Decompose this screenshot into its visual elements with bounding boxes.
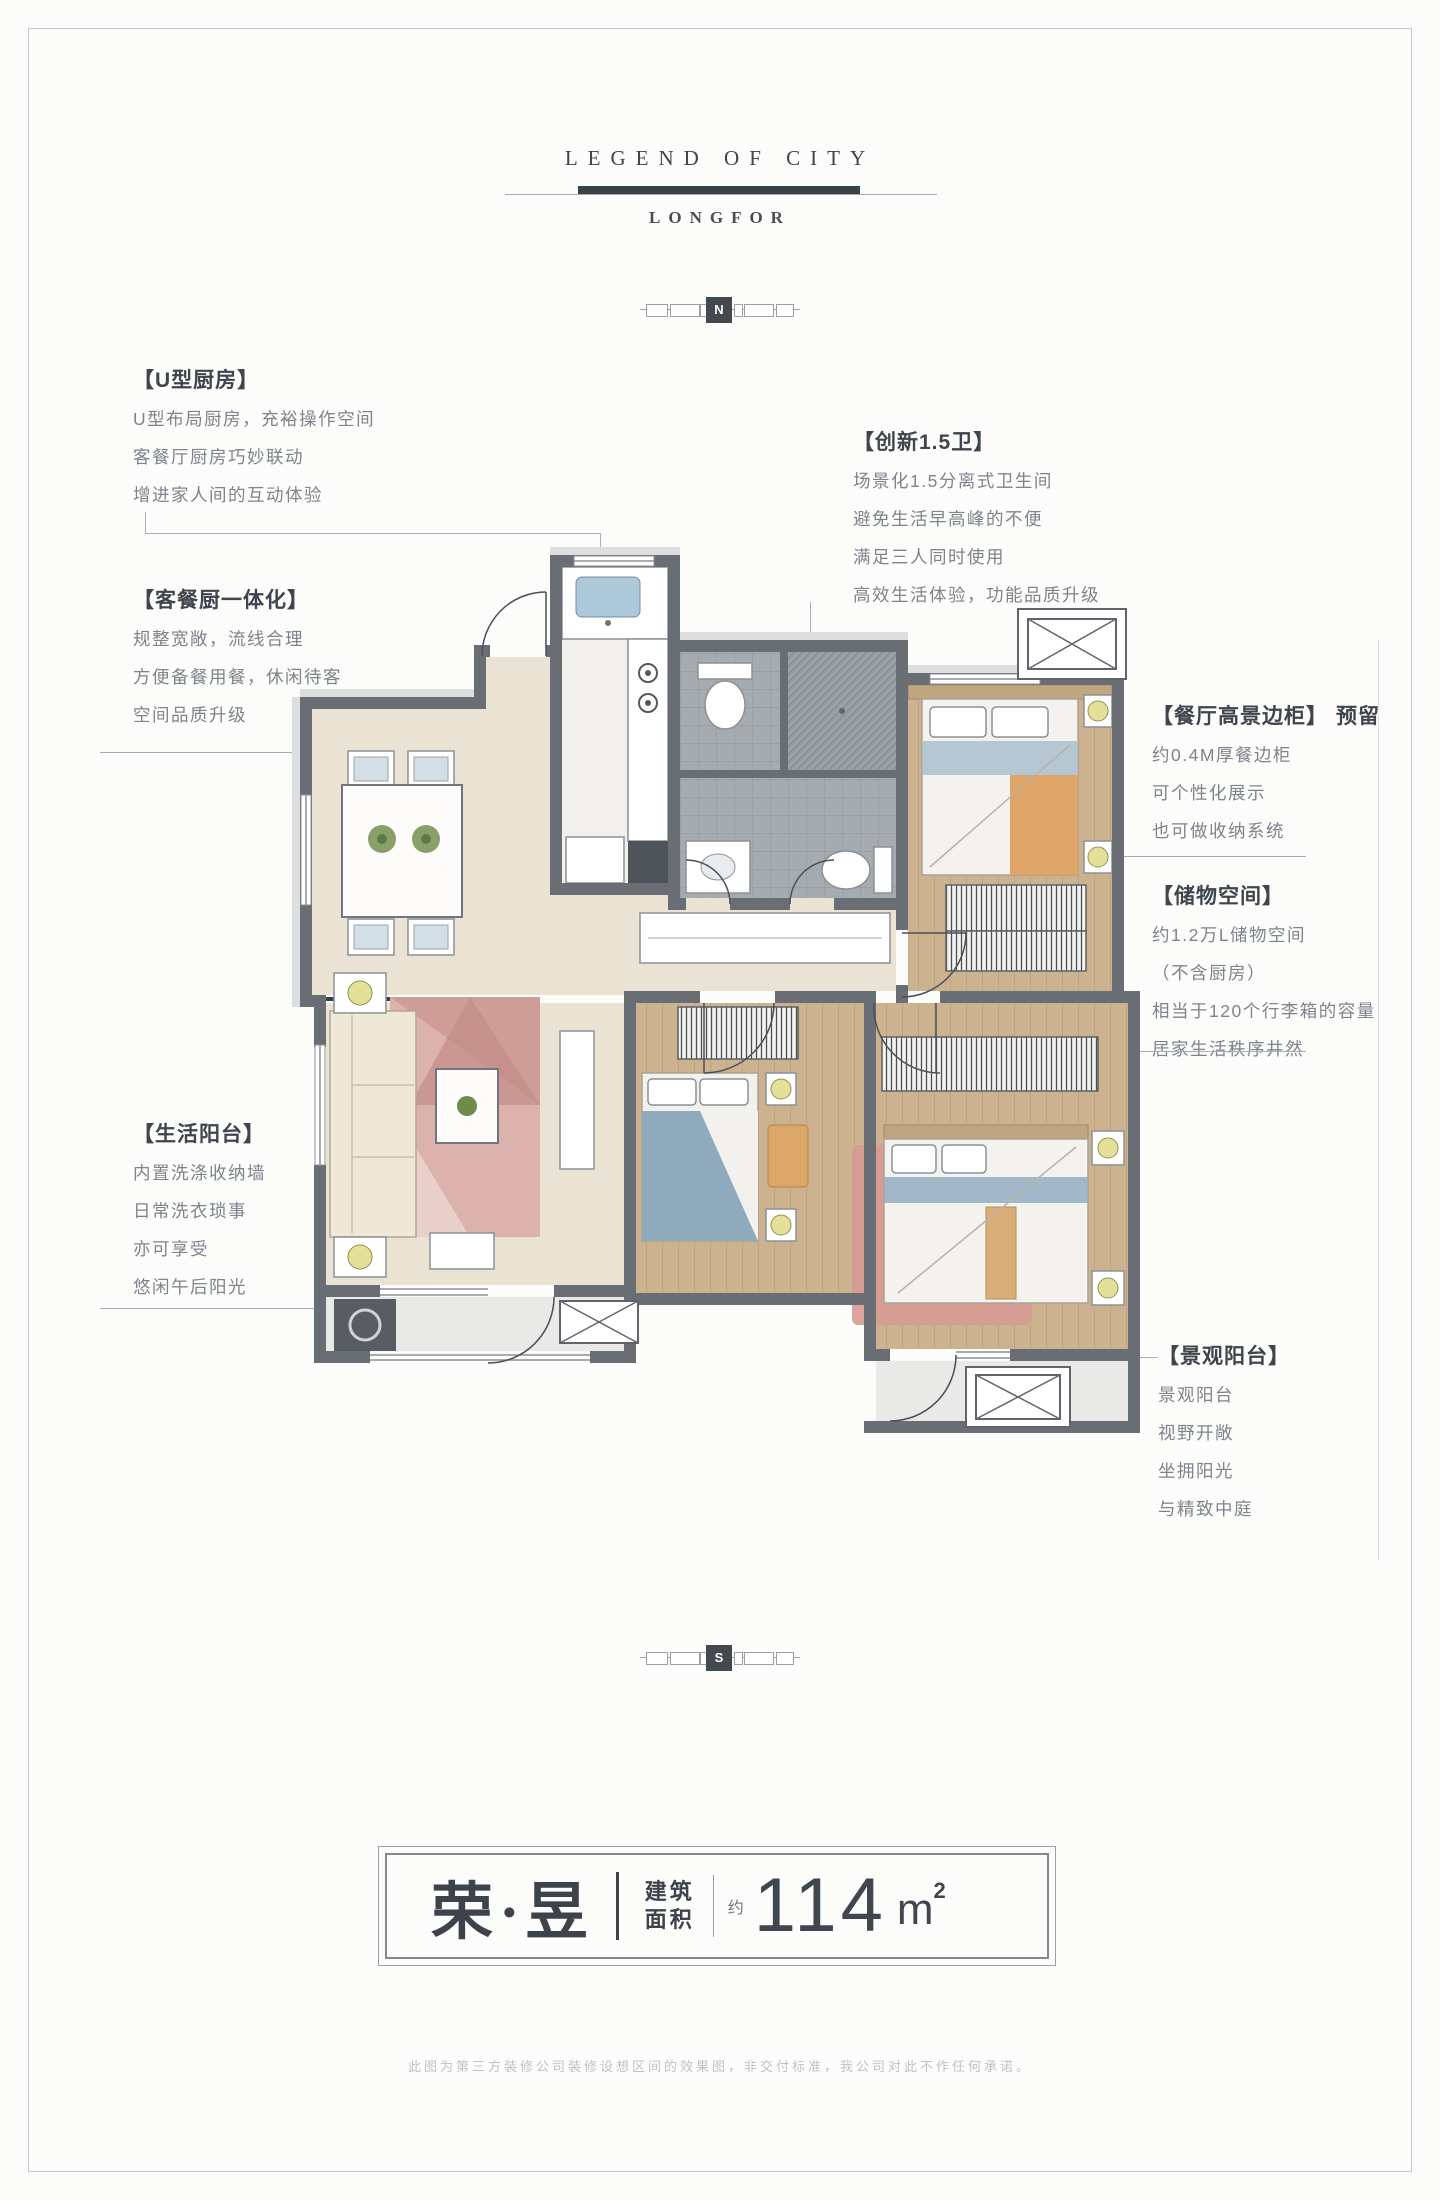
unit-title-card-inner: 荣·昱 建筑 面积 约 114 m2 bbox=[385, 1853, 1049, 1959]
south-indicator: S bbox=[706, 1645, 732, 1671]
wardrobe bbox=[678, 1007, 798, 1059]
toilet-tank bbox=[874, 847, 892, 893]
pillow bbox=[892, 1145, 936, 1173]
toilet-icon bbox=[705, 681, 745, 729]
unit-title-card: 荣·昱 建筑 面积 约 114 m2 bbox=[378, 1846, 1056, 1966]
headboard bbox=[884, 1125, 1088, 1139]
lamp-icon bbox=[1088, 701, 1108, 721]
shower-drain-icon bbox=[839, 708, 845, 714]
toilet-icon bbox=[822, 851, 870, 889]
life-balcony-items bbox=[334, 1299, 396, 1351]
pillow bbox=[992, 707, 1048, 737]
footstool bbox=[430, 1233, 494, 1269]
dining-table bbox=[342, 785, 462, 917]
kitchen-cabinet bbox=[628, 841, 668, 883]
entry-door-arc bbox=[482, 592, 546, 656]
lamp-icon bbox=[771, 1079, 791, 1099]
lamp-icon bbox=[1098, 1278, 1118, 1298]
area-value: 114 bbox=[754, 1868, 887, 1944]
kitchen-sink bbox=[576, 577, 640, 617]
lamp-icon bbox=[771, 1215, 791, 1235]
leader-u-kitchen bbox=[145, 512, 146, 533]
lamp-icon bbox=[1088, 847, 1108, 867]
washing-machine bbox=[334, 1299, 396, 1351]
sofa bbox=[330, 1011, 416, 1237]
compass-south-bar: S bbox=[640, 1644, 800, 1674]
callout-u-kitchen: 【U型厨房】 U型布局厨房，充裕操作空间 客餐厅厨房巧妙联动 增进家人间的互动体… bbox=[133, 364, 453, 524]
corridor-storage bbox=[640, 913, 890, 963]
brand-wordmark: LEGEND OF CITY bbox=[0, 146, 1440, 171]
area-label: 建筑 面积 bbox=[645, 1878, 695, 1934]
plant-icon bbox=[457, 1096, 477, 1116]
lamp-icon bbox=[1098, 1138, 1118, 1158]
unit-name: 荣·昱 bbox=[431, 1861, 594, 1951]
brand-underline bbox=[505, 194, 937, 195]
pillow bbox=[930, 707, 986, 737]
pillow bbox=[700, 1079, 748, 1105]
north-indicator: N bbox=[706, 297, 732, 323]
approx-label: 约 bbox=[728, 1894, 744, 1918]
leader-storage bbox=[1126, 1051, 1306, 1052]
blanket bbox=[1010, 775, 1078, 875]
wardrobe bbox=[882, 1037, 1098, 1091]
callout-view-balcony: 【景观阳台】 景观阳台 视野开敞 坐拥阳光 与精致中庭 bbox=[1158, 1340, 1418, 1538]
pillow bbox=[942, 1145, 986, 1173]
callout-title: 【餐厅高景边柜】预留 bbox=[1152, 700, 1422, 730]
leader-sideboard bbox=[1124, 856, 1306, 857]
tv-console bbox=[560, 1031, 594, 1169]
brand-name: LONGFOR bbox=[0, 208, 1440, 228]
floor-plan bbox=[230, 545, 1145, 1445]
callout-title: 【储物空间】 bbox=[1152, 880, 1432, 910]
fridge bbox=[566, 837, 624, 883]
callout-sideboard: 【餐厅高景边柜】预留 约0.4M厚餐边柜 可个性化展示 也可做收纳系统 bbox=[1152, 700, 1422, 860]
bed-runner bbox=[884, 1177, 1088, 1203]
callout-title: 【景观阳台】 bbox=[1158, 1340, 1418, 1370]
leader-u-kitchen bbox=[145, 533, 601, 534]
bed-bench bbox=[986, 1207, 1016, 1299]
callout-title: 【U型厨房】 bbox=[133, 364, 453, 394]
disclaimer-text: 此图为第三方装修公司装修设想区间的效果图，非交付标准，我公司对此不作任何承诺。 bbox=[0, 2056, 1440, 2075]
wardrobe bbox=[946, 931, 1086, 971]
callout-storage: 【储物空间】 约1.2万L储物空间 （不含厨房） 相当于120个行李箱的容量 居… bbox=[1152, 880, 1432, 1078]
area-unit: m2 bbox=[897, 1878, 946, 1935]
pillow bbox=[648, 1079, 696, 1105]
washbasin-icon bbox=[701, 854, 735, 880]
tick-divider bbox=[713, 1875, 714, 1937]
toilet-tank bbox=[698, 663, 752, 679]
wardrobe bbox=[946, 885, 1086, 931]
lamp-icon bbox=[348, 981, 372, 1005]
callout-title: 【创新1.5卫】 bbox=[853, 426, 1183, 456]
compass-north-bar: N bbox=[640, 296, 800, 326]
lamp-icon bbox=[348, 1245, 372, 1269]
headboard bbox=[908, 685, 1112, 699]
divider bbox=[616, 1872, 619, 1940]
master-bedroom-furniture bbox=[852, 1037, 1124, 1325]
floorplan-poster: LEGEND OF CITY LONGFOR N S 【U型厨房】 U型布局厨房… bbox=[0, 0, 1440, 2200]
desk-chair bbox=[768, 1125, 808, 1187]
